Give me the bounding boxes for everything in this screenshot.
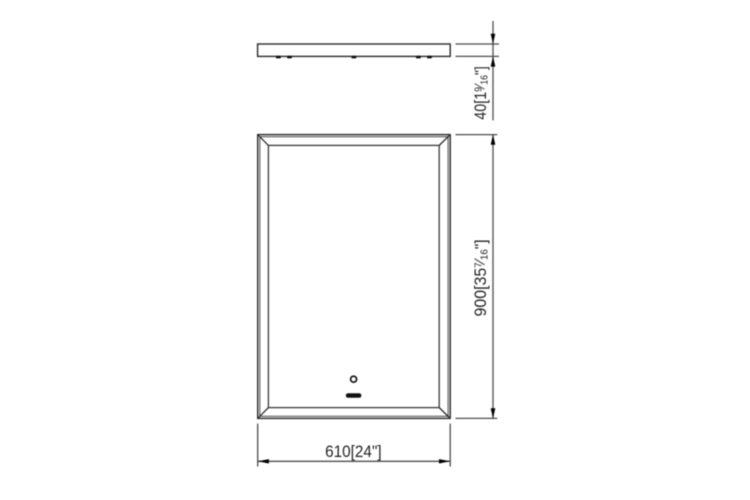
svg-text:610[24"]: 610[24"]	[325, 442, 382, 461]
svg-text:40[19⁄16"]: 40[19⁄16"]	[471, 66, 490, 120]
